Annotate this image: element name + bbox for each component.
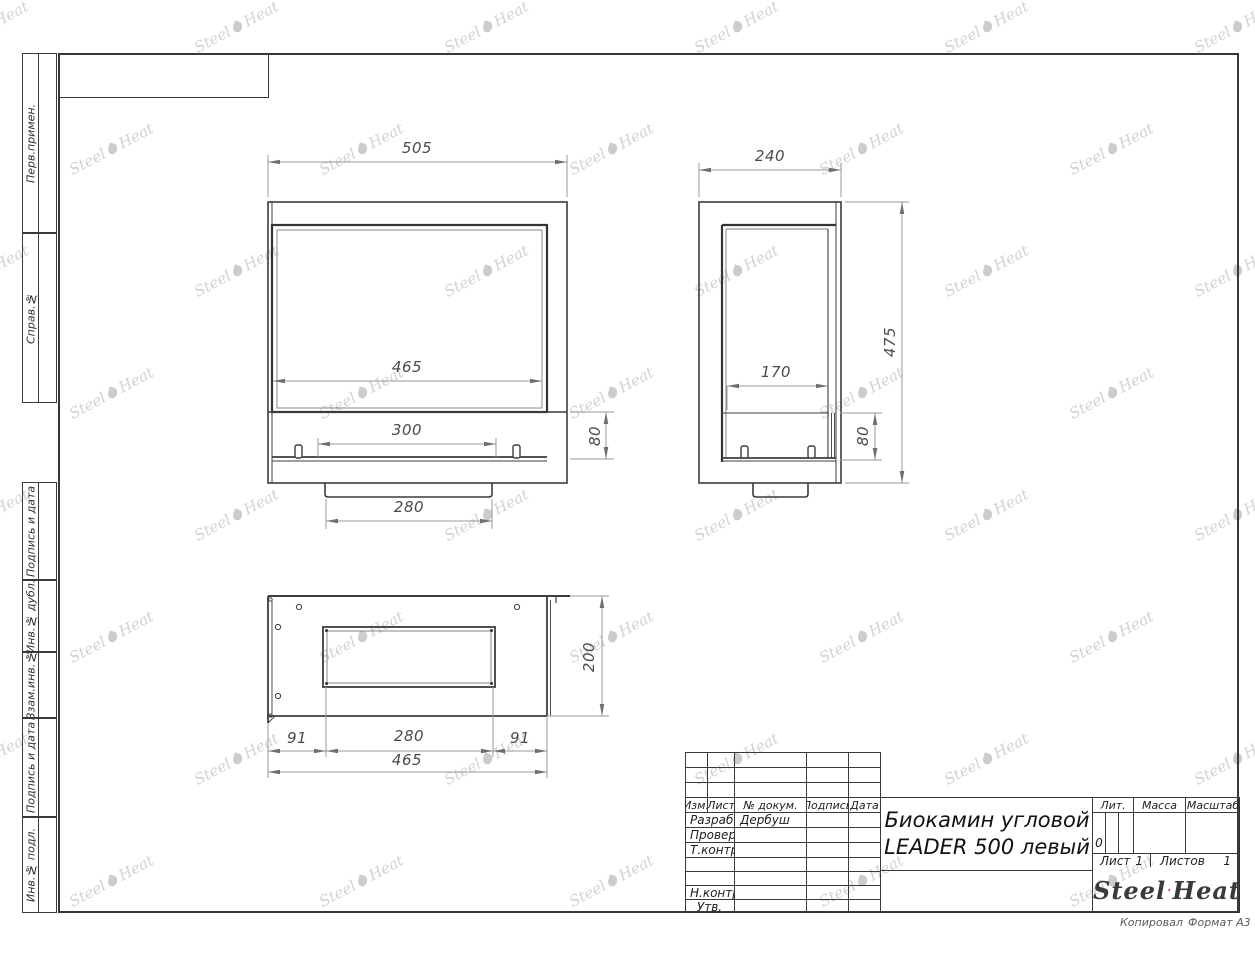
row-razrab: Разраб. (685, 812, 734, 827)
logo-word-steel: Steel (1093, 876, 1166, 905)
side-view-dimensions (699, 163, 909, 483)
steelheat-logo: Steel Heat (1092, 867, 1241, 913)
front-view-dimensions (268, 155, 614, 529)
title-block: Изм. Лист № докум. Подпись Дата Разраб. … (685, 752, 1240, 913)
plan-view (268, 596, 570, 723)
logo-word-heat: Heat (1172, 876, 1241, 905)
mass-label: Масса (1133, 797, 1185, 812)
col-sign: Подпись (806, 797, 848, 812)
document-title: Биокамин угловой LEADER 500 левый (880, 797, 1093, 870)
front-base-protrusion (325, 483, 492, 497)
scale-label: Масштаб (1185, 797, 1240, 812)
dim-front-glass-width: 465 (392, 358, 422, 376)
sheet-cell: Лист1 (1092, 853, 1150, 867)
dim-side-tray-depth: 170 (761, 363, 791, 381)
dim-side-overall-height: 475 (881, 327, 899, 357)
row-prover: Провер. (685, 827, 734, 842)
flame-icon (1168, 875, 1170, 905)
mount-hole (275, 624, 280, 629)
lit-value: 0 (1092, 812, 1105, 853)
row-utv: Утв. (685, 899, 734, 913)
title-line-1: Биокамин угловой (885, 807, 1090, 834)
row-nkontr: Н.контр. (685, 885, 734, 899)
lit-label: Лит. (1092, 797, 1133, 812)
scale-value (1185, 812, 1240, 853)
mount-hole (514, 604, 519, 609)
title-line-2: LEADER 500 левый (884, 834, 1090, 861)
burner-opening (323, 627, 495, 687)
dim-plan-opening-width: 280 (394, 727, 424, 745)
col-date: Дата (848, 797, 880, 812)
dim-front-overall-width: 505 (402, 139, 432, 157)
col-doc: № докум. (734, 797, 806, 812)
drawing-sheet: { "margin": { "items": [ {"label": "Перв… (0, 0, 1255, 970)
side-base-protrusion (753, 483, 808, 497)
col-izm: Изм. (685, 797, 707, 812)
side-view (699, 202, 841, 497)
mount-hole (296, 604, 301, 609)
revision-table (685, 752, 881, 798)
dim-front-tray-height: 80 (586, 426, 604, 446)
dim-plan-depth: 200 (580, 642, 598, 672)
col-list: Лист (707, 797, 734, 812)
dim-front-base-width: 280 (394, 498, 424, 516)
row-tkontr: Т.контр. (685, 842, 734, 857)
burner-clip-right (513, 445, 520, 458)
mount-hole (275, 693, 280, 698)
burner-clip-left (295, 445, 302, 458)
org-cell (880, 870, 1092, 913)
row-razrab-value: Дербуш (734, 812, 806, 827)
dim-plan-right-offset: 91 (510, 729, 530, 747)
dim-plan-left-offset: 91 (287, 729, 307, 747)
dim-side-depth: 240 (755, 147, 785, 165)
corner-hole (269, 598, 272, 601)
front-view (268, 202, 567, 497)
burner-clip-left (741, 446, 748, 458)
dim-front-burner-slot: 300 (392, 421, 422, 439)
mass-value (1133, 812, 1185, 853)
burner-clip-right (808, 446, 815, 458)
dim-plan-overall-width: 465 (392, 751, 422, 769)
dim-side-tray-height: 80 (854, 426, 872, 446)
sheets-cell: Листов1 (1150, 853, 1240, 867)
